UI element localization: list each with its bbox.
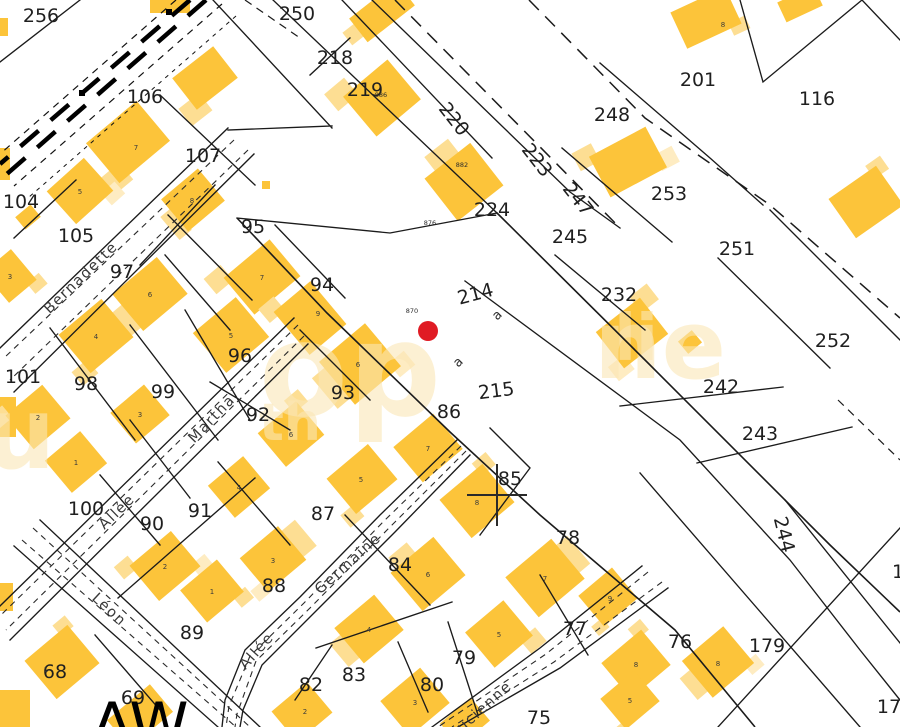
parcel-label: 87 [311, 503, 335, 525]
parcel-label: 245 [552, 226, 588, 248]
building-number: 7 [260, 274, 264, 282]
parcel-label: 79 [452, 647, 476, 669]
parcel-label: 86 [437, 401, 461, 423]
building-number: 5 [229, 332, 233, 340]
parcel-label: 1 [892, 561, 900, 583]
parcel-label: 78 [556, 527, 580, 549]
parcel-label: 218 [317, 47, 353, 69]
building-number: 5 [497, 631, 501, 639]
parcel-label: 252 [815, 330, 851, 352]
building-number: 1 [44, 666, 48, 674]
parcel-label: 107 [185, 145, 221, 167]
parcel-label: 80 [420, 674, 444, 696]
parcel-label: 104 [3, 191, 39, 213]
building-number: 3 [413, 699, 417, 707]
parcel-label: 232 [601, 284, 637, 306]
road-sublabel: 886 [375, 91, 387, 99]
parcel-label: 95 [241, 216, 265, 238]
parcel-label: 77 [563, 618, 587, 640]
building-number: 7 [426, 445, 430, 453]
section-label: AW [91, 690, 188, 727]
parcel-label: 88 [262, 575, 286, 597]
building-number: 1 [210, 588, 214, 596]
parcel-label: 82 [299, 674, 323, 696]
building-number: 7 [543, 575, 547, 583]
street-name-label: Martha [185, 392, 238, 446]
building-number: 5 [359, 476, 363, 484]
parcel-label: 83 [342, 664, 366, 686]
building-number: 9 [608, 595, 612, 603]
parcel-label: 94 [310, 274, 334, 296]
parcel-label: 248 [594, 104, 630, 126]
building-number: 6 [148, 291, 153, 299]
railway-marker-dot [79, 90, 85, 96]
parcel-label: 244 [769, 514, 799, 555]
parcel-label: 98 [74, 373, 98, 395]
building-number: 8 [716, 660, 720, 668]
parcel-label: 215 [477, 378, 516, 404]
building-number: 9 [316, 310, 320, 318]
parcel-label: 214 [455, 279, 496, 310]
parcel-label: 89 [180, 622, 204, 644]
parcel-label: 76 [668, 631, 692, 653]
parcel-label: 253 [651, 183, 687, 205]
parcel-label: 256 [23, 5, 59, 27]
building-number: 5 [628, 697, 632, 705]
parcel-label: 220 [434, 98, 474, 140]
cadastral-map[interactable]: opnethuli [0, 0, 900, 727]
parcel-label: 247 [558, 178, 598, 220]
watermark-fragment: li [614, 302, 658, 376]
railway-marker-dot [166, 9, 172, 15]
parcel-label: 96 [228, 345, 252, 367]
parcel-label: 178 [877, 696, 900, 718]
building-number: 4 [237, 484, 242, 492]
parcel-label: 106 [127, 86, 163, 108]
parcel-label: 93 [331, 382, 355, 404]
street-name-label: Allée [237, 630, 278, 673]
parcel-label: 90 [140, 513, 164, 535]
cadastral-map-viewport[interactable]: opnethuli [0, 0, 900, 727]
parcel-label: 242 [703, 376, 739, 398]
parcel-label: 243 [742, 423, 778, 445]
road-sublabel: 876 [424, 219, 436, 227]
parcel-label: 75 [527, 707, 551, 727]
building-number: 6 [426, 571, 431, 579]
parcel-label: 99 [151, 381, 175, 403]
building-number: 4 [367, 626, 372, 634]
building-number: 1 [74, 459, 78, 467]
building-number: 7 [134, 144, 138, 152]
parcel-label: 92 [246, 404, 270, 426]
parcel-label: 105 [58, 225, 94, 247]
parcel-label: 101 [5, 366, 41, 388]
parcel-label: 116 [799, 88, 835, 110]
road-sublabel: a [450, 354, 466, 370]
parcel-label: 100 [68, 498, 104, 520]
building-number: 6 [289, 431, 294, 439]
parcel-label: 201 [680, 69, 716, 91]
building-number: 3 [138, 411, 142, 419]
road-sublabel: 870 [406, 307, 418, 315]
street-name-label: Germaine [312, 530, 384, 597]
building-number: 2 [163, 563, 167, 571]
parcel-label: 250 [279, 3, 315, 25]
street-name-label: Lucienne [447, 678, 515, 727]
building-number: 2 [36, 414, 40, 422]
road-sublabel: 882 [456, 161, 468, 169]
parcel-label: 97 [110, 261, 134, 283]
watermark-fragment: u [0, 375, 56, 492]
parcel-label: 84 [388, 554, 412, 576]
building-number: 8 [721, 21, 725, 29]
parcel-label: 179 [749, 635, 785, 657]
parcel-label: 251 [719, 238, 755, 260]
building-number: 2 [303, 708, 307, 716]
building-number: 8 [475, 499, 479, 507]
parcel-label: 85 [498, 468, 522, 490]
building-number: 3 [8, 273, 12, 281]
building-number: 8 [190, 197, 194, 205]
building-number: 3 [271, 557, 275, 565]
building-number: 5 [78, 188, 82, 196]
location-marker[interactable] [418, 321, 438, 341]
building-number: 4 [94, 333, 99, 341]
parcel-label: 91 [188, 500, 212, 522]
building-number: 8 [634, 661, 638, 669]
parcel-label: 224 [474, 199, 510, 221]
building-number: 6 [356, 361, 361, 369]
